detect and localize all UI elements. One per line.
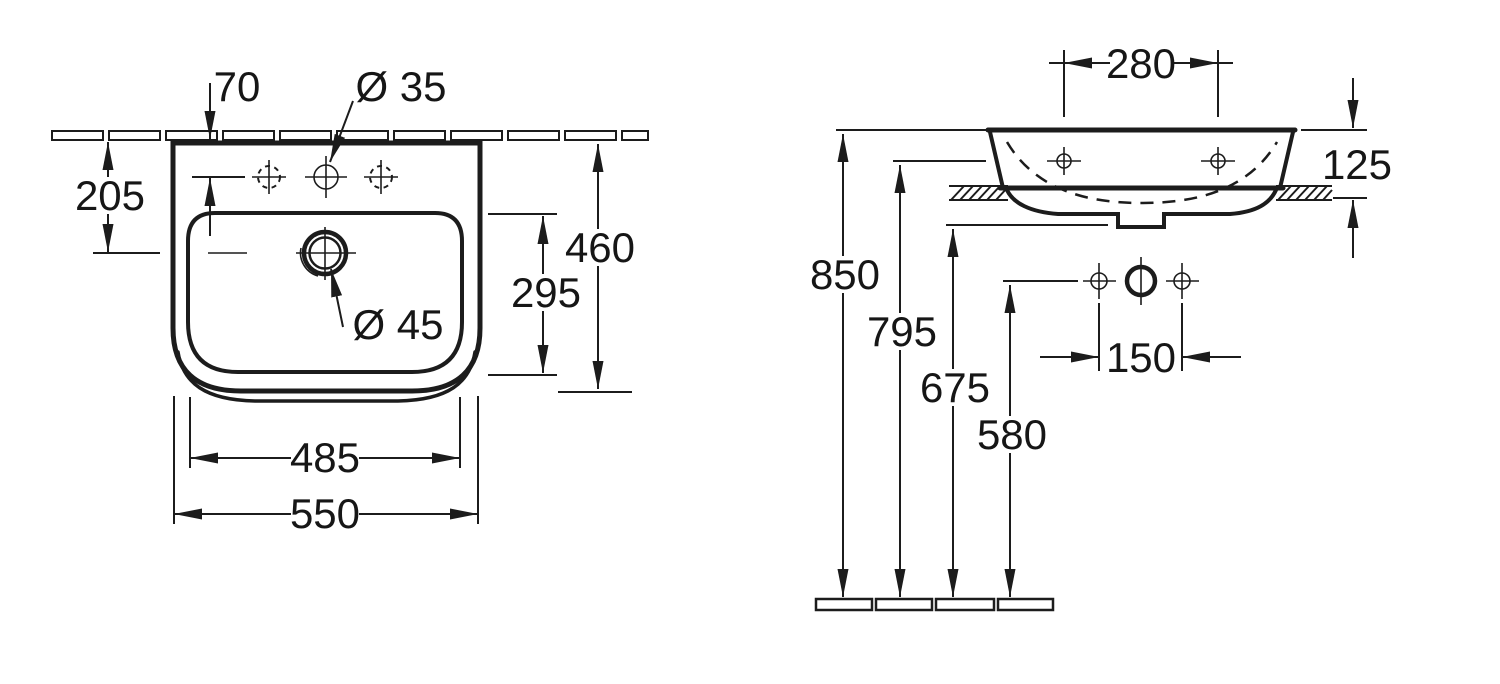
dim-label-d35: Ø 35 bbox=[355, 63, 446, 110]
optional-hole-left bbox=[252, 160, 286, 194]
leader-line bbox=[331, 269, 343, 327]
dim-label-850: 850 bbox=[810, 251, 880, 298]
wall-segment bbox=[280, 131, 331, 140]
dim-label-550: 550 bbox=[290, 490, 360, 537]
dim-fixing-hole-spacing: 280 bbox=[1049, 40, 1233, 117]
wall-line bbox=[52, 131, 648, 140]
dim-connection-height: 580 bbox=[974, 281, 1078, 597]
floor-segment bbox=[876, 599, 932, 610]
dim-label-150: 150 bbox=[1106, 334, 1176, 381]
hatch-line bbox=[1323, 190, 1332, 200]
wall-segment bbox=[508, 131, 559, 140]
fixing-hole-left bbox=[1047, 147, 1081, 175]
dim-label-125: 125 bbox=[1322, 141, 1392, 188]
basin-underside bbox=[1007, 190, 1276, 227]
wall-segment bbox=[109, 131, 160, 140]
dim-label-205: 205 bbox=[75, 172, 145, 219]
dim-inner-width: 485 bbox=[190, 397, 460, 481]
dim-connection-spacing: 150 bbox=[1040, 303, 1241, 381]
fixing-hole-right bbox=[1201, 147, 1235, 175]
basin-right-edge bbox=[1280, 132, 1293, 188]
inner-bowl-hidden-line bbox=[1007, 142, 1277, 203]
plan-view: 205 70 Ø 35 Ø 45 295 bbox=[52, 63, 648, 537]
dim-label-485: 485 bbox=[290, 434, 360, 481]
floor-segment bbox=[936, 599, 994, 610]
dim-overall-depth: 460 bbox=[558, 144, 638, 392]
wall-hatch-left bbox=[949, 186, 1008, 200]
floor-segment bbox=[998, 599, 1053, 610]
dim-label-460: 460 bbox=[565, 224, 635, 271]
tap-hole bbox=[305, 156, 347, 198]
dim-label-675: 675 bbox=[920, 364, 990, 411]
wall-segment bbox=[451, 131, 502, 140]
optional-hole-right bbox=[364, 160, 398, 194]
dim-drain-offset: 205 bbox=[72, 142, 160, 253]
dim-drain-diameter: Ø 45 bbox=[331, 269, 444, 348]
basin-front-rim-line bbox=[178, 352, 475, 401]
wall-segment bbox=[394, 131, 445, 140]
wall-segment bbox=[337, 131, 388, 140]
dim-label-295: 295 bbox=[511, 269, 581, 316]
washbasin-technical-drawing: 205 70 Ø 35 Ø 45 295 bbox=[0, 0, 1500, 684]
dim-label-580: 580 bbox=[977, 411, 1047, 458]
connection-points bbox=[1083, 257, 1199, 305]
dim-label-d45: Ø 45 bbox=[352, 301, 443, 348]
dim-label-795: 795 bbox=[867, 308, 937, 355]
wall-segment bbox=[622, 131, 648, 140]
side-view: 280 125 850 795 675 bbox=[807, 40, 1392, 610]
dim-body-height: 125 bbox=[1301, 78, 1392, 258]
dim-tap-offset: 70 bbox=[192, 63, 260, 236]
dim-label-70: 70 bbox=[214, 63, 261, 110]
dim-label-280: 280 bbox=[1106, 40, 1176, 87]
basin-left-edge bbox=[990, 132, 1003, 188]
drawing-canvas: 205 70 Ø 35 Ø 45 295 bbox=[0, 0, 1500, 684]
floor-line bbox=[816, 599, 1053, 610]
floor-segment bbox=[816, 599, 872, 610]
wall-segment bbox=[565, 131, 616, 140]
drain-hole bbox=[208, 227, 356, 280]
dim-tap-diameter: Ø 35 bbox=[330, 63, 447, 162]
wall-segment bbox=[52, 131, 103, 140]
wall-segment bbox=[223, 131, 274, 140]
